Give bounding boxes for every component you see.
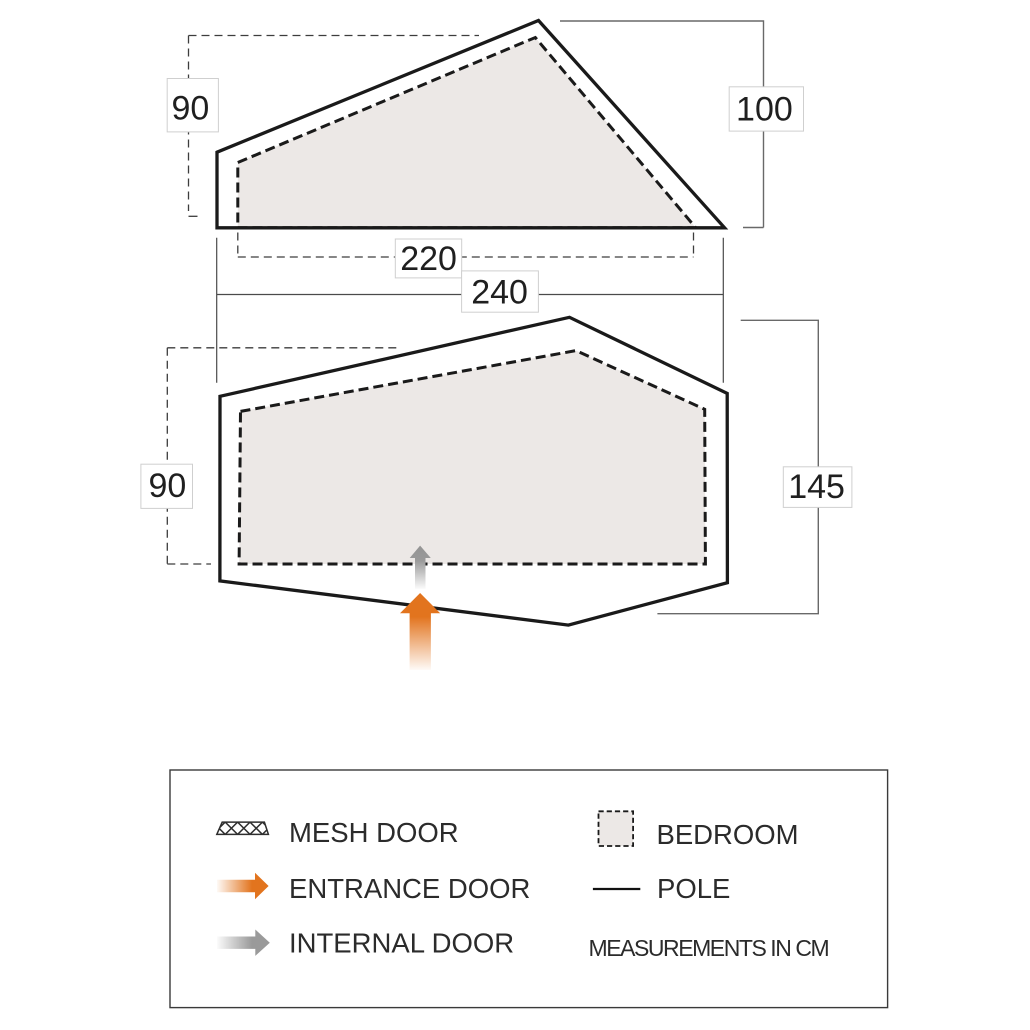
svg-text:90: 90 bbox=[148, 467, 186, 505]
svg-text:MEASUREMENTS IN CM: MEASUREMENTS IN CM bbox=[589, 935, 829, 961]
svg-text:240: 240 bbox=[471, 274, 528, 312]
svg-text:90: 90 bbox=[171, 90, 209, 128]
svg-text:ENTRANCE DOOR: ENTRANCE DOOR bbox=[289, 873, 530, 904]
svg-text:100: 100 bbox=[736, 91, 793, 129]
svg-text:INTERNAL DOOR: INTERNAL DOOR bbox=[289, 928, 514, 959]
svg-text:MESH DOOR: MESH DOOR bbox=[289, 817, 459, 848]
svg-text:220: 220 bbox=[400, 240, 457, 278]
svg-text:POLE: POLE bbox=[657, 873, 730, 904]
svg-text:BEDROOM: BEDROOM bbox=[657, 819, 799, 850]
svg-text:145: 145 bbox=[788, 468, 845, 506]
